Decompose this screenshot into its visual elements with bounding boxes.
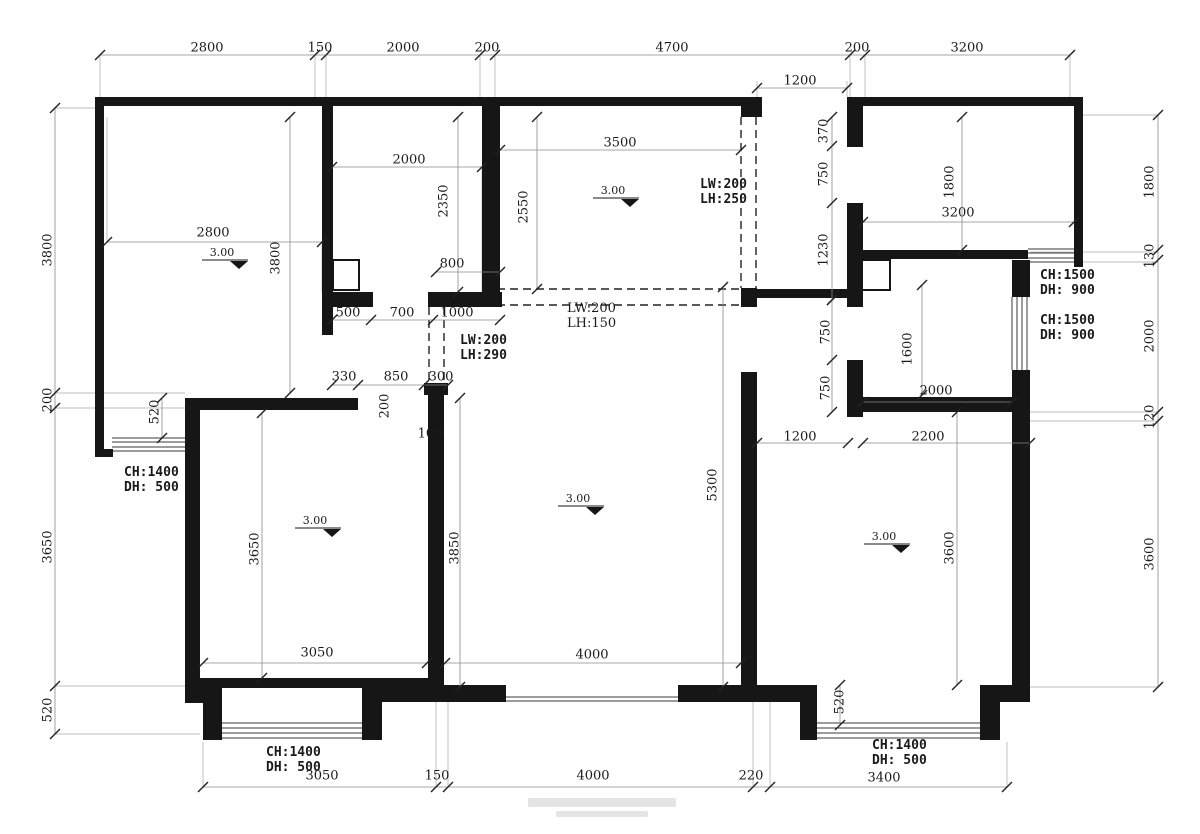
dim-label: 150 xyxy=(425,769,450,784)
dim-label: 2350 xyxy=(437,184,452,217)
wall-segment xyxy=(678,685,817,702)
dim-label: 3800 xyxy=(41,233,56,266)
wall-segment xyxy=(1074,97,1083,267)
dim-label: 3800 xyxy=(269,241,284,274)
wall-segment xyxy=(1012,260,1030,297)
opening-annotation: DH: 500 xyxy=(124,480,179,495)
dim-label: 220 xyxy=(739,769,764,784)
dim-label: 3650 xyxy=(248,532,263,565)
opening-annotation: LH:250 xyxy=(700,192,747,207)
dim-label: 4000 xyxy=(576,769,609,784)
wall-segment xyxy=(741,97,762,117)
opening-annotation: LW:200 xyxy=(460,333,507,348)
opening-annotation: CH:1400 xyxy=(872,738,927,753)
opening-annotation: CH:1500 xyxy=(1040,268,1095,283)
dim-label: 1200 xyxy=(783,74,816,89)
dim-label: 750 xyxy=(817,162,832,187)
wall-segment xyxy=(980,702,1000,740)
dim-label: 4000 xyxy=(575,648,608,663)
dim-label: 2550 xyxy=(517,190,532,223)
dim-label: 2200 xyxy=(911,430,944,445)
column-box xyxy=(333,260,359,290)
dim-label: 1800 xyxy=(943,165,958,198)
dim-label: 750 xyxy=(819,376,834,401)
dim-label: 300 xyxy=(429,370,454,385)
dim-label: 2000 xyxy=(919,384,952,399)
dim-label: 3850 xyxy=(448,531,463,564)
dim-label: 4700 xyxy=(655,41,688,56)
opening-annotation: CH:1400 xyxy=(124,465,179,480)
dim-label: 1000 xyxy=(440,306,473,321)
dim-label: 1800 xyxy=(1143,165,1158,198)
level-value: 3.00 xyxy=(601,184,626,197)
opening-annotation: CH:1500 xyxy=(1040,313,1095,328)
dim-label: 200 xyxy=(845,41,870,56)
dim-label: 3600 xyxy=(1143,537,1158,570)
wall-segment xyxy=(847,360,863,417)
dim-label: 3400 xyxy=(867,771,900,786)
dim-label: 130 xyxy=(1143,244,1158,269)
dim-label: 2800 xyxy=(190,41,223,56)
dim-label: 520 xyxy=(833,690,848,715)
opening-annotation: DH: 500 xyxy=(266,760,321,775)
dim-label: 330 xyxy=(332,370,357,385)
opening-annotation: DH: 900 xyxy=(1040,328,1095,343)
wall-segment xyxy=(862,397,1012,412)
dim-label: 2000 xyxy=(386,41,419,56)
floor-plan-canvas: 2800150200020047002003200120038002003650… xyxy=(0,0,1200,834)
opening-annotation: LH:290 xyxy=(460,348,507,363)
dim-label: 2000 xyxy=(1143,319,1158,352)
floor-plan-page: 2800150200020047002003200120038002003650… xyxy=(0,0,1200,834)
column-box xyxy=(862,260,890,290)
dim-label: 1230 xyxy=(817,233,832,266)
dim-label: 370 xyxy=(817,119,832,144)
level-value: 3.00 xyxy=(210,246,235,259)
dim-label: 750 xyxy=(819,320,834,345)
dim-label: 150 xyxy=(308,41,333,56)
wall-segment xyxy=(741,372,757,687)
watermark-block xyxy=(528,798,676,807)
level-value: 3.00 xyxy=(872,530,897,543)
dim-label: 800 xyxy=(440,257,465,272)
dim-label: 850 xyxy=(384,370,409,385)
wall-segment xyxy=(741,289,862,298)
wall-segment xyxy=(185,398,358,410)
dim-label: 520 xyxy=(148,400,163,425)
dim-label: 1600 xyxy=(901,332,916,365)
dim-label: 520 xyxy=(41,698,56,723)
wall-segment xyxy=(95,97,762,106)
dim-label: 100 xyxy=(418,427,443,442)
dim-label: 3600 xyxy=(943,531,958,564)
level-value: 3.00 xyxy=(303,514,328,527)
dim-label: 200 xyxy=(475,41,500,56)
wall-segment xyxy=(185,398,200,695)
dim-label: 1200 xyxy=(783,430,816,445)
dim-label: 200 xyxy=(378,394,393,419)
dim-label: 3200 xyxy=(950,41,983,56)
wall-segment xyxy=(1012,370,1030,702)
dim-label: 2000 xyxy=(392,153,425,168)
wall-segment xyxy=(847,97,863,117)
wall-segment xyxy=(860,250,1028,259)
dim-label: 3500 xyxy=(603,136,636,151)
wall-segment xyxy=(482,106,500,307)
watermark-block xyxy=(556,811,648,817)
wall-segment xyxy=(847,97,1083,106)
opening-annotation: LW:200 xyxy=(567,301,616,316)
dim-label: 2800 xyxy=(196,226,229,241)
dim-label: 3200 xyxy=(941,206,974,221)
wall-segment xyxy=(362,685,506,702)
wall-segment xyxy=(800,685,817,740)
opening-annotation: CH:1400 xyxy=(266,745,321,760)
opening-annotation: DH: 500 xyxy=(872,753,927,768)
dim-label: 200 xyxy=(41,388,56,413)
dim-label: 3650 xyxy=(41,530,56,563)
dim-label: 5300 xyxy=(706,468,721,501)
wall-segment xyxy=(322,106,333,307)
dim-label: 3050 xyxy=(300,646,333,661)
opening-annotation: DH: 900 xyxy=(1040,283,1095,298)
wall-segment xyxy=(203,700,222,740)
dim-label: 500 xyxy=(336,306,361,321)
wall-segment xyxy=(980,685,1012,702)
dim-label: 700 xyxy=(390,306,415,321)
opening-annotation: LW:200 xyxy=(700,177,747,192)
wall-segment xyxy=(95,97,104,457)
wall-segment xyxy=(95,449,113,457)
dim-label: 120 xyxy=(1143,405,1158,430)
level-value: 3.00 xyxy=(566,492,591,505)
opening-annotation: LH:150 xyxy=(567,316,616,331)
